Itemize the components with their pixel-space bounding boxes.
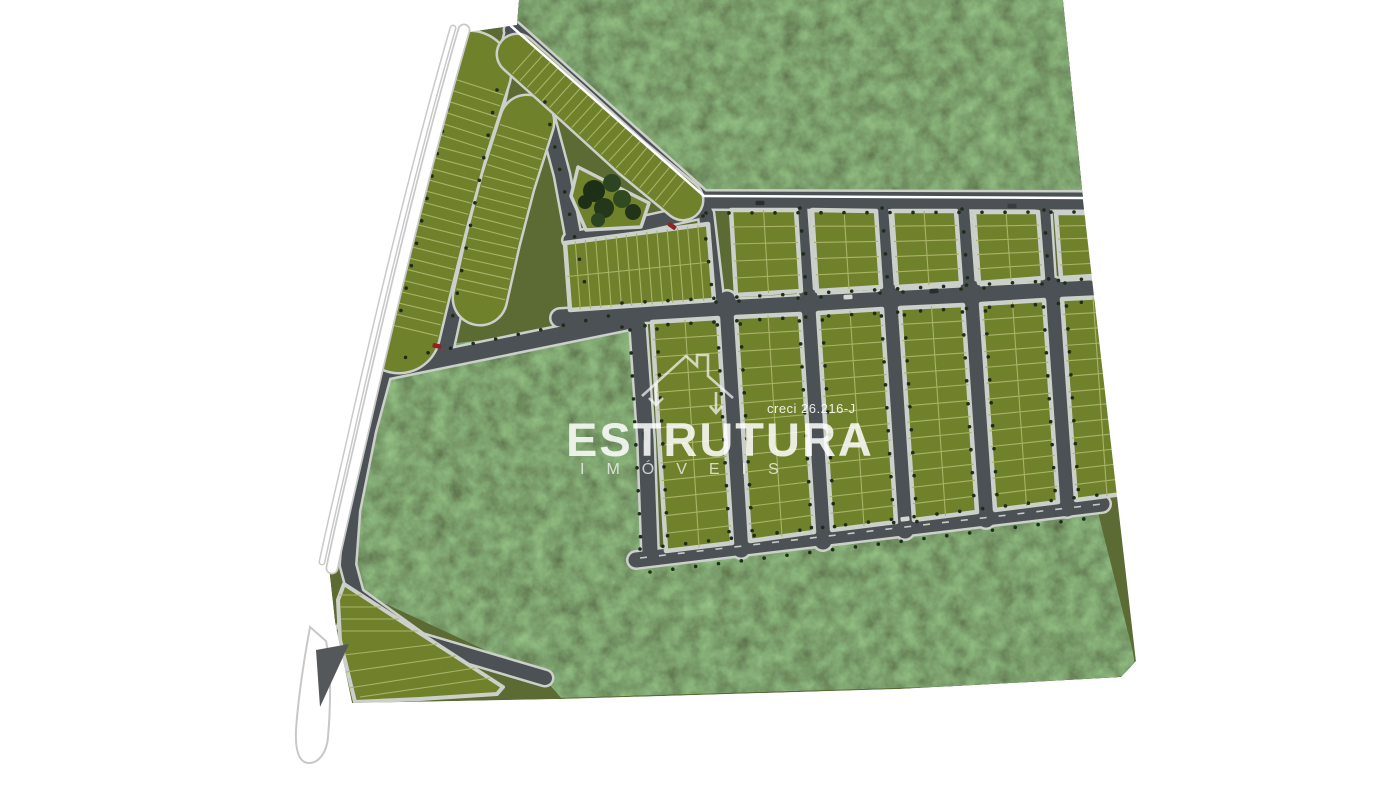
- car: [756, 201, 765, 206]
- site-content: [329, 0, 1138, 703]
- car: [642, 431, 647, 440]
- masterplan-render: creci 26.216-J ESTRUTURA IMÓVEIS: [0, 0, 1400, 787]
- car: [843, 294, 852, 299]
- highway-exit-gore: [296, 627, 349, 763]
- car: [929, 288, 938, 293]
- site-plan-svg: [0, 0, 1400, 787]
- car: [1008, 204, 1017, 209]
